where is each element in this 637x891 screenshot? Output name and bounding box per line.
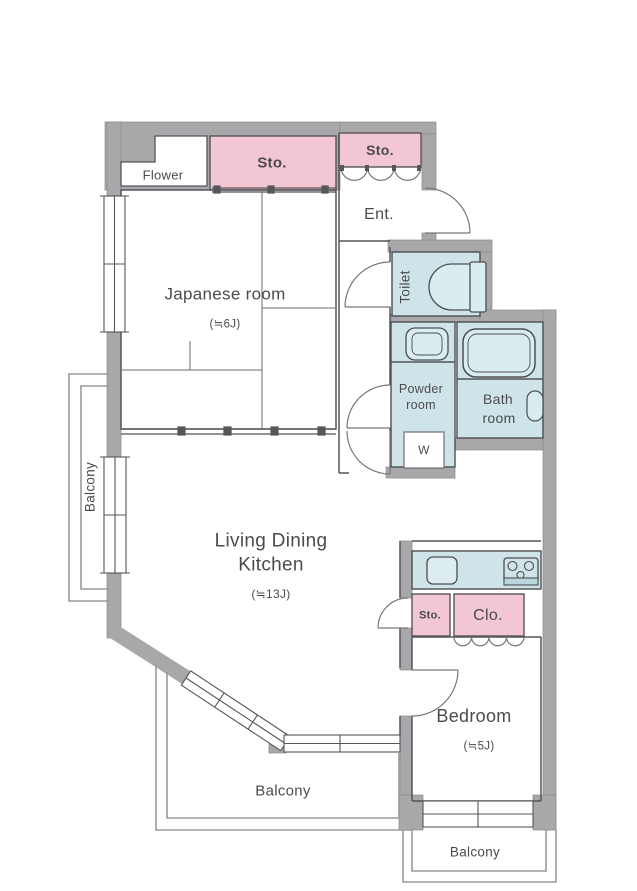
powder-room-door: [347, 385, 390, 428]
hall-ldk-door: [347, 431, 390, 474]
tatami-lines: [122, 192, 335, 428]
floor-plan-drawing: [0, 0, 637, 891]
kitchen-storage-door: [378, 598, 408, 628]
stove-icon: [504, 558, 538, 585]
kitchen-sink-icon: [427, 557, 457, 584]
toilet-fixture-icon: [429, 262, 486, 312]
storage-top-label: Sto.: [257, 156, 287, 171]
closet-label: Clo.: [473, 608, 503, 624]
bedroom-size: (≒5J): [464, 741, 495, 753]
powder-room-label-1: Powder: [399, 383, 443, 396]
powder-sink-icon: [406, 328, 448, 360]
toilet-door: [345, 262, 390, 307]
bedroom-label: Bedroom: [436, 707, 511, 725]
storage-entrance-label: Sto.: [366, 143, 394, 157]
toilet-label: Toilet: [398, 270, 412, 303]
sliding-door-tracks: [121, 186, 336, 435]
flower-label: Flower: [143, 169, 184, 182]
floor-plan: Flower Sto. Sto. Ent. Japanese room (≒6J…: [0, 0, 637, 891]
washer-label: W: [418, 444, 430, 456]
entrance-door: [425, 188, 470, 233]
entrance-label: Ent.: [364, 207, 394, 223]
ldk-size: (≒13J): [251, 588, 290, 600]
balcony-bottom-right-label: Balcony: [450, 845, 500, 859]
japanese-room-label: Japanese room: [164, 286, 285, 303]
bath-room-label-2: room: [482, 411, 515, 425]
balcony-bottom-label: Balcony: [255, 784, 310, 799]
balcony-left-label: Balcony: [83, 462, 97, 512]
japanese-room-size: (≒6J): [210, 319, 241, 331]
powder-room-label-2: room: [406, 399, 436, 412]
closet-folding-doors: [454, 637, 524, 646]
bath-room-label-1: Bath: [483, 392, 513, 406]
interior-walls: [121, 134, 543, 801]
ldk-label-2: Kitchen: [238, 556, 303, 575]
ldk-label-1: Living Dining: [215, 532, 328, 551]
storage-kitchen-label: Sto.: [419, 611, 441, 622]
